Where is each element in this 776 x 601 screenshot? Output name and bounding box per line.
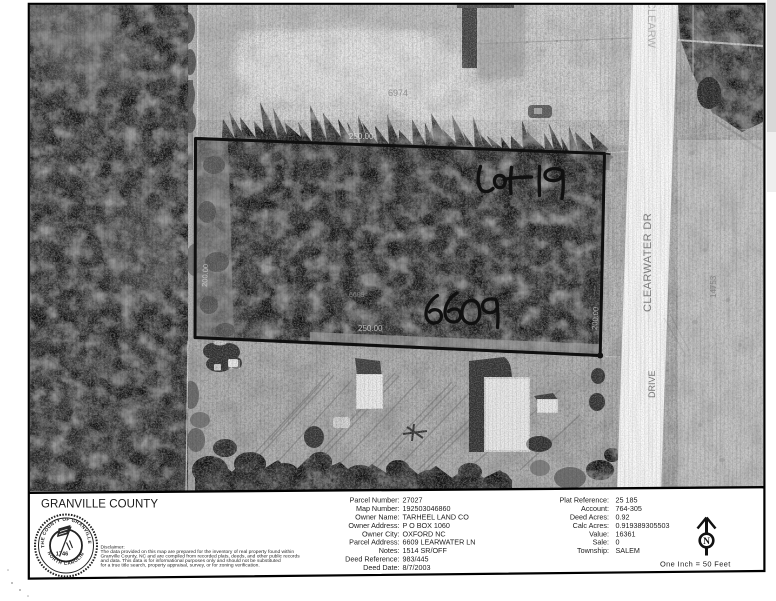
svg-text:8/7/2003: 8/7/2003 [403,563,431,572]
svg-text:Deed Date:: Deed Date: [363,563,399,572]
svg-text:1746: 1746 [56,552,68,558]
svg-text:SALEM: SALEM [616,546,640,555]
svg-text:One Inch = 50 Feet: One Inch = 50 Feet [660,560,731,569]
svg-text:GRANVILLE COUNTY: GRANVILLE COUNTY [41,499,158,511]
svg-text:Township:: Township: [577,546,609,555]
svg-text:for a true title search, prope: for a true title search, property apprai… [101,563,260,569]
svg-text:N: N [703,537,710,547]
